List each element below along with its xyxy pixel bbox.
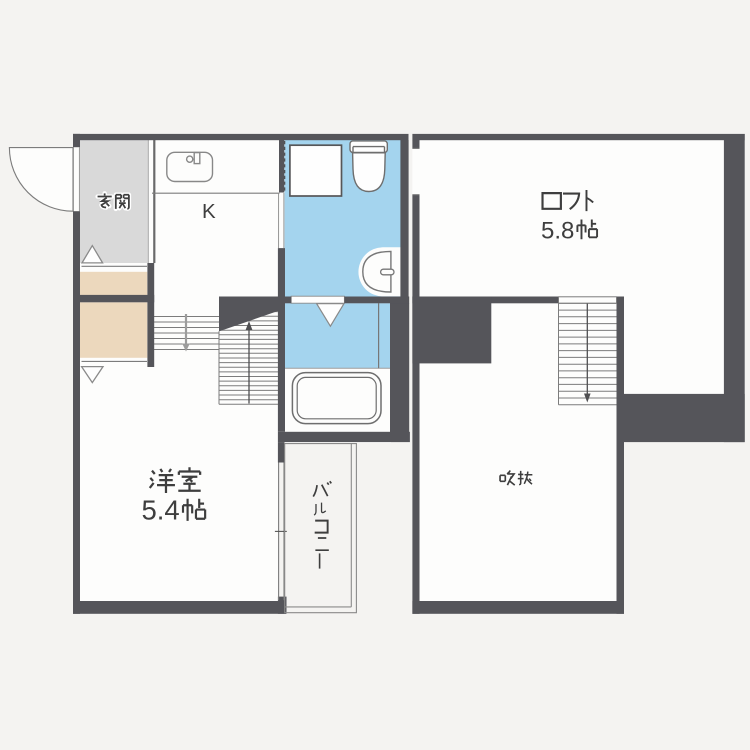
svg-text:5.4: 5.4 <box>142 495 180 526</box>
svg-text:5.8: 5.8 <box>541 217 574 244</box>
svg-text:K: K <box>202 200 216 223</box>
